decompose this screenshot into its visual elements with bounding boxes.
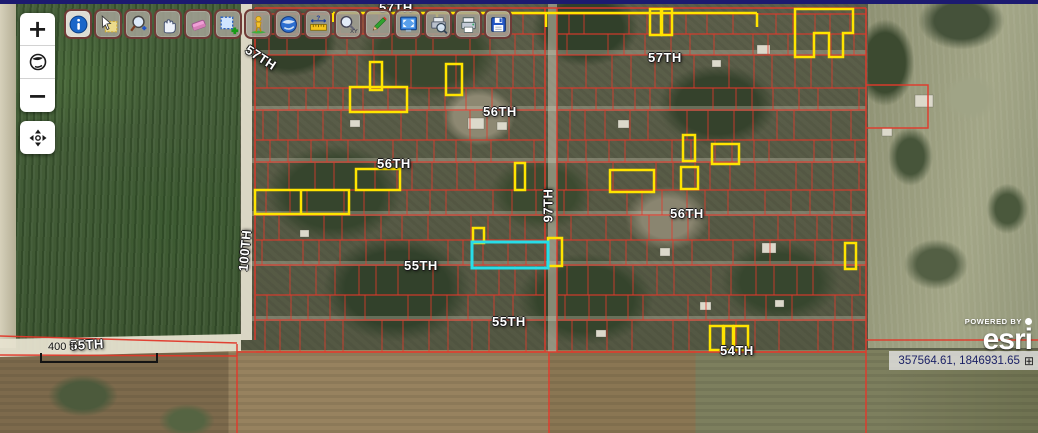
window-top-edge xyxy=(0,0,1038,4)
draw-button[interactable] xyxy=(364,9,392,39)
esri-attribution: POWERED BY esri xyxy=(965,317,1032,353)
print-preview-button[interactable] xyxy=(424,9,452,39)
google-earth-button[interactable] xyxy=(274,9,302,39)
zoom-to-coordinates-button[interactable]: XY xyxy=(334,9,362,39)
select-features-button[interactable] xyxy=(94,9,122,39)
eraser-icon xyxy=(188,14,209,35)
monitor-arrows-icon xyxy=(398,14,419,35)
ruler-icon: ? xyxy=(308,14,329,35)
printer-icon xyxy=(458,14,479,35)
scale-distance-label: 400 ft xyxy=(40,341,158,353)
zoom-control: + − xyxy=(20,13,55,112)
info-icon xyxy=(68,14,89,35)
terrain-pasture xyxy=(868,0,1038,348)
pegman-icon xyxy=(248,14,269,35)
pan-button[interactable] xyxy=(154,9,182,39)
pencil-icon xyxy=(368,14,389,35)
question-glyph: ? xyxy=(316,14,320,21)
print-button[interactable] xyxy=(454,9,482,39)
scale-bracket xyxy=(40,353,158,363)
scale-bar: 400 ft xyxy=(40,341,158,363)
terrain-field-edge xyxy=(0,0,16,348)
full-extent-button[interactable] xyxy=(394,9,422,39)
world-globe-icon xyxy=(28,52,48,72)
xy-glyph: XY xyxy=(350,28,358,34)
save-button[interactable] xyxy=(484,9,512,39)
cursor-coordinates: 357564.61, 1846931.65 xyxy=(898,355,1020,367)
terrain-woods xyxy=(240,0,868,352)
zoom-in-button[interactable]: + xyxy=(20,13,55,46)
select-cursor-icon xyxy=(98,14,119,35)
marquee-plus-icon xyxy=(218,14,239,35)
add-to-selection-button[interactable] xyxy=(214,9,242,39)
zoom-out-button[interactable]: − xyxy=(20,79,55,112)
measure-button[interactable]: ? xyxy=(304,9,332,39)
locate-button[interactable] xyxy=(20,121,55,154)
map-toolbar: ? XY xyxy=(64,9,512,39)
hand-icon xyxy=(158,14,179,35)
basemap-globe-button[interactable] xyxy=(20,46,55,79)
earth-globe-icon xyxy=(278,14,299,35)
locate-crosshair-icon xyxy=(28,128,48,148)
esri-logo: esri xyxy=(965,326,1032,353)
map-application: 57TH57TH57TH56TH56TH56TH55TH55TH55TH54TH… xyxy=(0,0,1038,433)
zoom-in-tool-button[interactable] xyxy=(124,9,152,39)
magnifier-xy-icon: XY xyxy=(338,14,359,35)
magnifier-plus-icon xyxy=(128,14,149,35)
erase-button[interactable] xyxy=(184,9,212,39)
identify-button[interactable] xyxy=(64,9,92,39)
floppy-icon xyxy=(488,14,509,35)
printer-magnifier-icon xyxy=(428,14,449,35)
street-view-button[interactable] xyxy=(244,9,272,39)
